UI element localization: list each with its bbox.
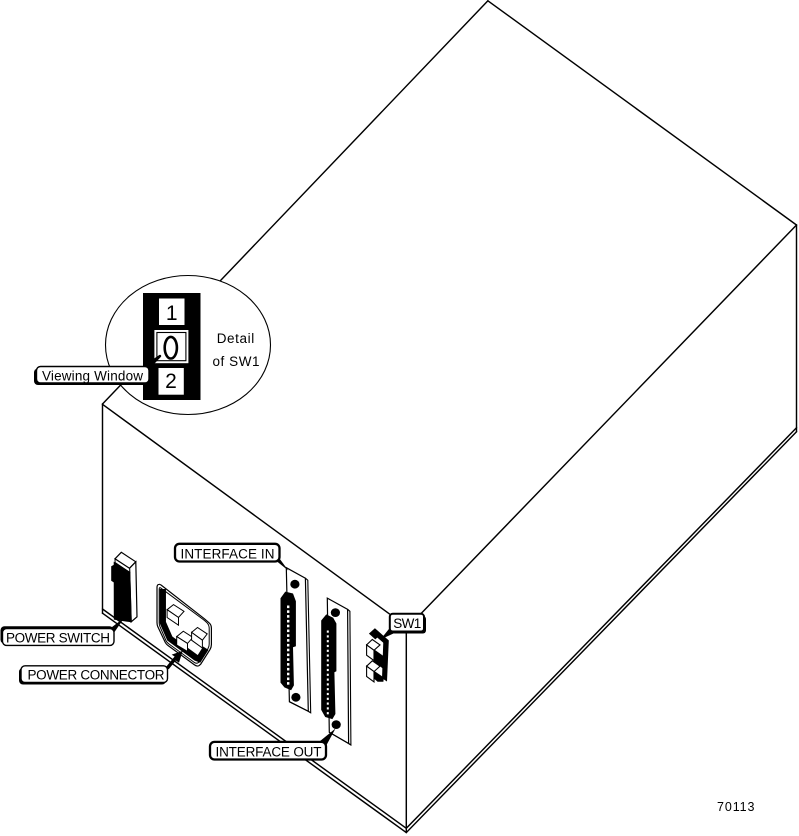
svg-text:1: 1 bbox=[166, 302, 178, 325]
svg-text:SW1: SW1 bbox=[393, 616, 421, 631]
svg-text:of SW1: of SW1 bbox=[213, 354, 260, 369]
svg-text:70113: 70113 bbox=[717, 800, 755, 814]
svg-text:POWER CONNECTOR: POWER CONNECTOR bbox=[28, 667, 165, 682]
svg-text:INTERFACE IN: INTERFACE IN bbox=[181, 547, 275, 562]
svg-text:2: 2 bbox=[165, 370, 177, 393]
svg-text:Detail: Detail bbox=[217, 331, 255, 346]
svg-text:Viewing Window: Viewing Window bbox=[42, 369, 143, 384]
svg-text:INTERFACE OUT: INTERFACE OUT bbox=[216, 745, 322, 760]
svg-text:POWER SWITCH: POWER SWITCH bbox=[6, 630, 110, 645]
